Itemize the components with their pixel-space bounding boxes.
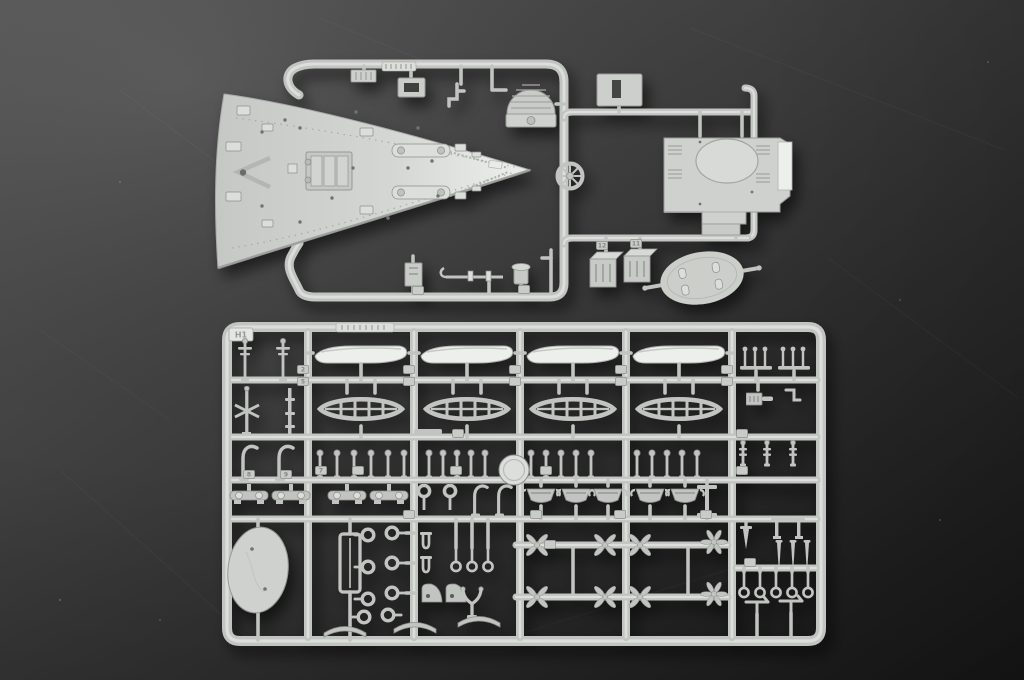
ribbed-vent-plate-part	[351, 70, 376, 82]
part-number-tag: 5	[297, 377, 308, 385]
rod-part	[414, 429, 442, 434]
part-number-tag: 7	[315, 466, 326, 474]
tag-label: 5	[301, 379, 305, 386]
blank-tag	[412, 286, 423, 294]
whaleboat-part	[638, 398, 720, 421]
hatch-coaming-part	[398, 78, 425, 97]
embossed-text-strip	[336, 323, 394, 332]
part-number-tag: 2	[297, 365, 308, 373]
part-number-tag: 11	[630, 239, 641, 247]
lifeboat-part	[315, 346, 407, 363]
whaleboat-part	[320, 398, 402, 421]
mast-step	[288, 164, 297, 173]
dinghy-parts	[522, 489, 704, 503]
windlass-machinery	[305, 152, 352, 190]
oval-skylight	[696, 139, 758, 183]
photo-stage: 12 11 H1	[0, 0, 1024, 680]
hawse-hole	[240, 169, 246, 175]
whaleboat-part	[532, 398, 614, 421]
part-number-tag: 12	[596, 241, 607, 249]
tag-label: 2	[301, 367, 305, 374]
tag-label: 11	[632, 241, 640, 248]
lifeboat-part	[527, 346, 619, 363]
model-kit-photo: 12 11 H1	[0, 0, 1024, 680]
capstan-part	[512, 264, 530, 285]
round-disc-part	[499, 455, 529, 485]
blank-tag	[518, 285, 529, 293]
whaleboat-part	[426, 398, 508, 421]
white-side-wall	[778, 142, 792, 190]
winch-body-part	[405, 263, 422, 286]
tag-label: 8	[247, 472, 251, 479]
part-number-tag: 9	[280, 470, 291, 478]
tag-label: 7	[319, 468, 323, 475]
lifeboat-part	[633, 346, 725, 363]
tag-label: 9	[284, 472, 288, 479]
sprue-corner-label: H1	[229, 328, 253, 341]
part-number-tag: 8	[243, 470, 254, 478]
name-plate-part	[597, 74, 642, 106]
capstan-wheel-part	[558, 164, 583, 189]
lifeboat-part	[421, 346, 513, 363]
tag-label: 12	[598, 243, 606, 250]
